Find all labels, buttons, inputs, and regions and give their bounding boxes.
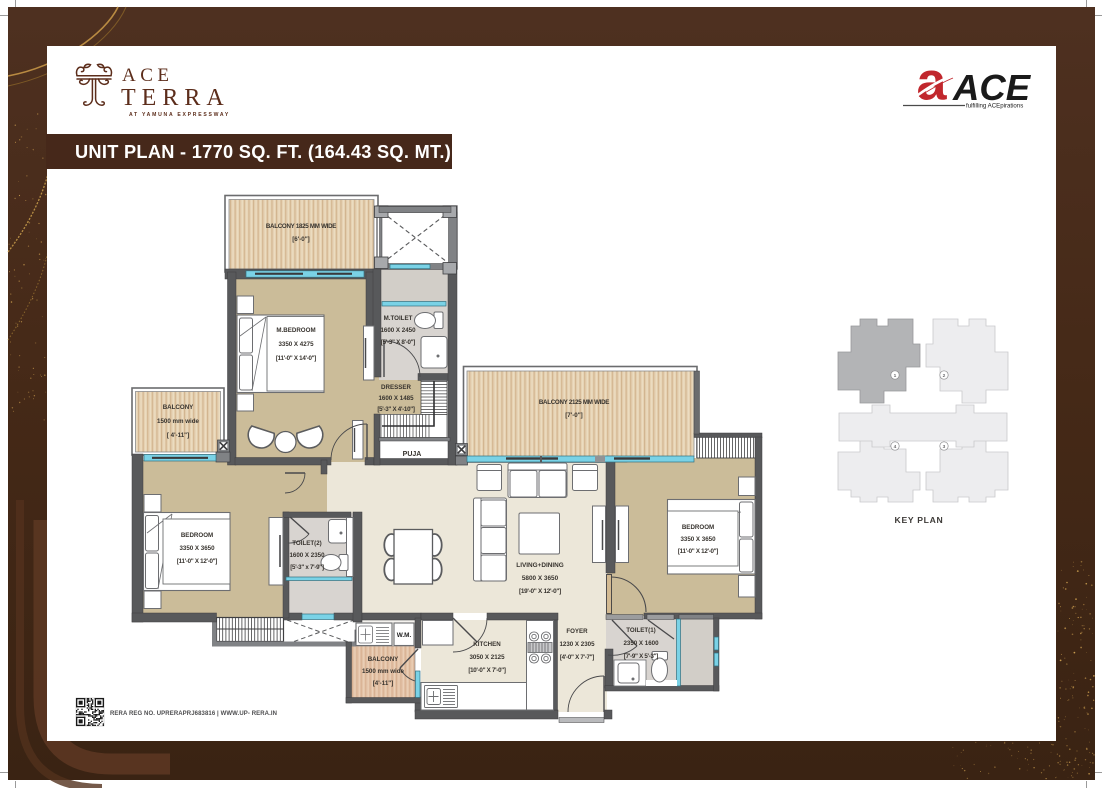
svg-text:M.BEDROOM: M.BEDROOM — [276, 327, 315, 334]
svg-text:[5'-3" X 8'-0"]: [5'-3" X 8'-0"] — [381, 339, 415, 346]
svg-text:FOYER: FOYER — [566, 628, 588, 635]
svg-text:fulfilling ACEpirations: fulfilling ACEpirations — [966, 103, 1023, 110]
svg-text:[11'-0" X 14'-0"]: [11'-0" X 14'-0"] — [276, 355, 316, 362]
svg-text:DRESSER: DRESSER — [381, 384, 411, 391]
svg-text:[5'-3" x 7'-9"]: [5'-3" x 7'-9"] — [290, 564, 324, 571]
svg-text:4: 4 — [894, 444, 897, 450]
svg-text:1600 X 2450: 1600 X 2450 — [380, 327, 416, 334]
svg-text:1230 X 2305: 1230 X 2305 — [559, 641, 595, 648]
svg-text:BALCONY 2125 MM WIDE: BALCONY 2125 MM WIDE — [539, 399, 609, 406]
svg-text:3350 X 3650: 3350 X 3650 — [680, 536, 716, 543]
svg-text:[6'-0"]: [6'-0"] — [292, 236, 309, 243]
svg-text:ACE: ACE — [122, 65, 174, 86]
svg-text:AT YAMUNA EXPRESSWAY: AT YAMUNA EXPRESSWAY — [129, 112, 230, 118]
svg-text:[11'-0" X 12'-0"]: [11'-0" X 12'-0"] — [177, 558, 217, 565]
svg-text:PUJA: PUJA — [403, 451, 422, 458]
svg-text:1500 mm wide: 1500 mm wide — [157, 418, 200, 425]
svg-text:BALCONY 1825 MM WIDE: BALCONY 1825 MM WIDE — [266, 223, 336, 230]
svg-text:BEDROOM: BEDROOM — [682, 524, 714, 531]
svg-text:[5'-3" X 4'-10"]: [5'-3" X 4'-10"] — [377, 406, 415, 413]
svg-text:[4'-11"]: [4'-11"] — [373, 680, 394, 687]
svg-text:a: a — [917, 52, 948, 112]
svg-text:1600 X 2350: 1600 X 2350 — [289, 552, 325, 559]
svg-text:5800 X 3650: 5800 X 3650 — [522, 575, 559, 582]
svg-text:BALCONY: BALCONY — [163, 404, 194, 411]
svg-text:KEY PLAN: KEY PLAN — [895, 515, 944, 525]
svg-text:2: 2 — [943, 373, 946, 379]
svg-text:1500 mm wide: 1500 mm wide — [362, 668, 405, 675]
svg-text:KITCHEN: KITCHEN — [473, 641, 501, 648]
svg-text:3: 3 — [943, 444, 946, 450]
svg-text:3050 X 2125: 3050 X 2125 — [469, 654, 505, 661]
svg-text:[19'-0" X 12'-0"]: [19'-0" X 12'-0"] — [519, 588, 561, 595]
svg-text:[7'-9" X 5'-3"]: [7'-9" X 5'-3"] — [624, 653, 658, 660]
svg-text:1: 1 — [894, 373, 897, 379]
svg-text:[11'-0" X 12'-0"]: [11'-0" X 12'-0"] — [678, 548, 718, 555]
svg-text:1600 X 1485: 1600 X 1485 — [378, 395, 414, 402]
svg-text:BEDROOM: BEDROOM — [181, 532, 213, 539]
svg-text:2350 X 1600: 2350 X 1600 — [623, 640, 659, 647]
svg-text:M.TOILET: M.TOILET — [384, 315, 413, 322]
svg-text:LIVING+DINING: LIVING+DINING — [516, 562, 563, 569]
svg-text:TOILET(1): TOILET(1) — [626, 627, 655, 634]
svg-text:[4'-0" X 7'-7"]: [4'-0" X 7'-7"] — [560, 654, 594, 661]
svg-text:3350 X 3650: 3350 X 3650 — [179, 545, 215, 552]
svg-text:BALCONY: BALCONY — [368, 656, 399, 663]
svg-text:UNIT PLAN - 1770 SQ. FT. (164.: UNIT PLAN - 1770 SQ. FT. (164.43 SQ. MT.… — [75, 142, 451, 162]
svg-text:3350 X 4275: 3350 X 4275 — [278, 341, 314, 348]
svg-text:TERRA: TERRA — [121, 85, 230, 111]
svg-text:W.M.: W.M. — [397, 632, 412, 639]
svg-text:[ 4'-11"]: [ 4'-11"] — [167, 432, 189, 439]
svg-text:TOILET(2): TOILET(2) — [292, 540, 321, 547]
svg-text:[7'-0"]: [7'-0"] — [565, 412, 582, 419]
svg-text:[10'-0" X 7'-0"]: [10'-0" X 7'-0"] — [468, 667, 506, 674]
svg-text:RERA REG NO. UPRERAPRJ683816 |: RERA REG NO. UPRERAPRJ683816 | WWW.UP- R… — [110, 711, 277, 717]
